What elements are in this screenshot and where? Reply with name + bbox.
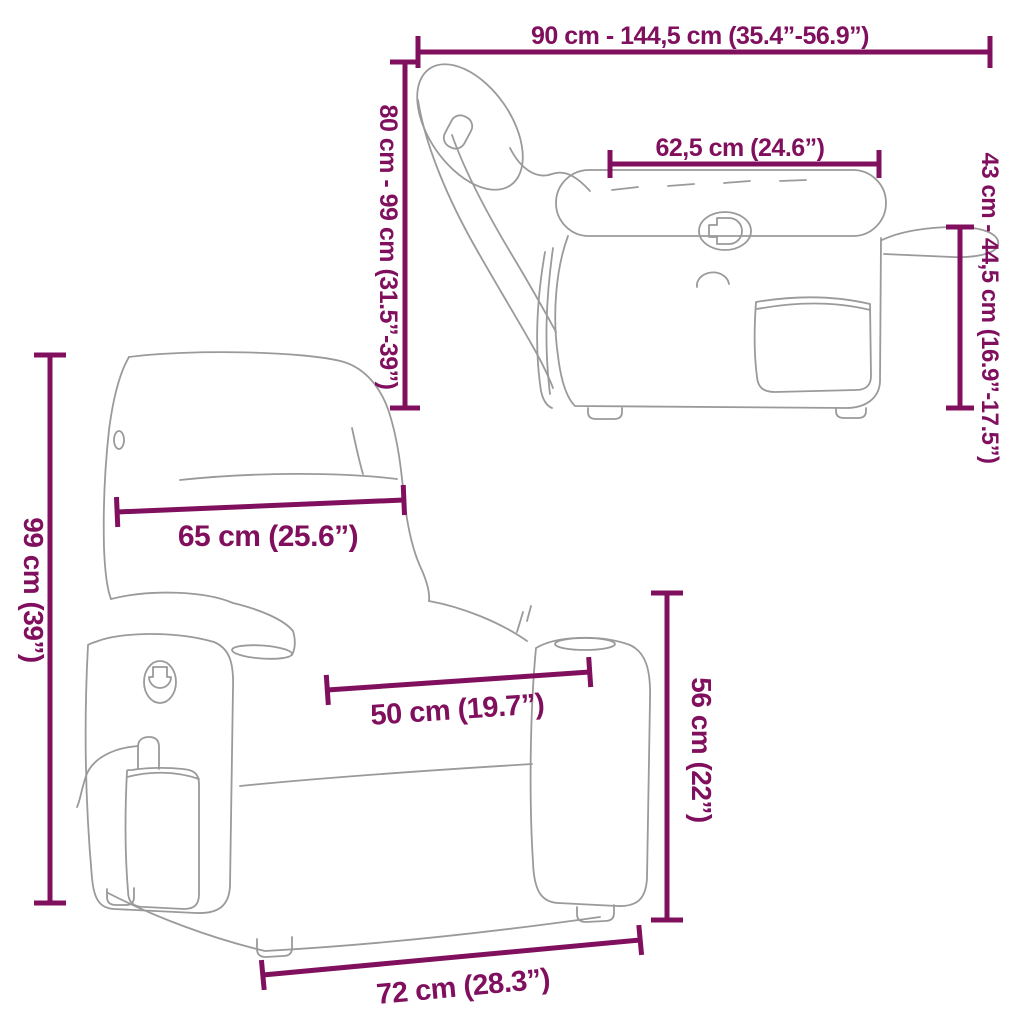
label-side-overall-height: 80 cm - 99 cm (31.5”-39”) <box>374 105 402 390</box>
right-armrest-back-edge <box>429 601 527 641</box>
backrest-seam <box>180 474 397 480</box>
backrest-wrinkle <box>352 428 363 474</box>
armrest-seam-dashes <box>612 180 806 190</box>
chair-foot <box>836 408 866 418</box>
remote-in-pocket <box>138 737 159 769</box>
side-pocket <box>755 297 871 392</box>
backrest-right-edge <box>129 352 429 601</box>
label-side-overall-width: 90 cm - 144,5 cm (35.4”-56.9”) <box>531 22 869 50</box>
side-view-chair <box>396 45 999 419</box>
armrest-pillow <box>556 170 886 236</box>
release-lever-keyhole <box>709 218 742 244</box>
label-front-base-width: 72 cm (28.3”) <box>375 963 551 1011</box>
footrest-handle <box>440 112 475 152</box>
dimension-diagram: 90 cm - 144,5 cm (35.4”-56.9”) 80 cm - 9… <box>0 0 1024 1024</box>
side-pocket-hem <box>127 773 199 779</box>
label-front-backrest-width: 65 cm (25.6”) <box>178 520 358 553</box>
dim-front-armrest-height-line <box>651 593 683 920</box>
footrest-outer-edge <box>418 100 553 388</box>
label-front-armrest-height: 56 cm (22”) <box>686 677 717 822</box>
backrest-left-edge <box>104 357 129 599</box>
chair-body <box>555 236 881 408</box>
label-side-armrest-length: 62,5 cm (24.6”) <box>656 134 825 162</box>
chair-foot <box>588 408 622 419</box>
sketch-strokes <box>517 606 531 632</box>
front-view-chair <box>77 352 650 957</box>
remote-pouch-top <box>697 272 729 287</box>
footrest-pillow <box>396 45 545 208</box>
dimension-lines <box>34 36 990 990</box>
chair-foot <box>107 888 134 905</box>
label-front-total-height: 99 cm (39”) <box>18 517 49 662</box>
left-armrest-panel <box>86 634 233 913</box>
base-bottom-edge <box>108 893 600 951</box>
backrest-side-button <box>114 431 124 449</box>
side-pocket <box>126 768 199 909</box>
release-lever-keyhole <box>149 667 171 688</box>
left-cupholder <box>232 643 293 660</box>
chair-foot <box>257 937 292 957</box>
seat-front-edge <box>240 764 532 786</box>
dim-side-arm-height-line <box>946 227 974 408</box>
label-side-arm-height: 43 cm - 44,5 cm (16.9”-17.5”) <box>976 152 1003 463</box>
label-front-seat-width: 50 cm (19.7”) <box>369 688 545 732</box>
side-pocket-hem <box>757 304 870 311</box>
